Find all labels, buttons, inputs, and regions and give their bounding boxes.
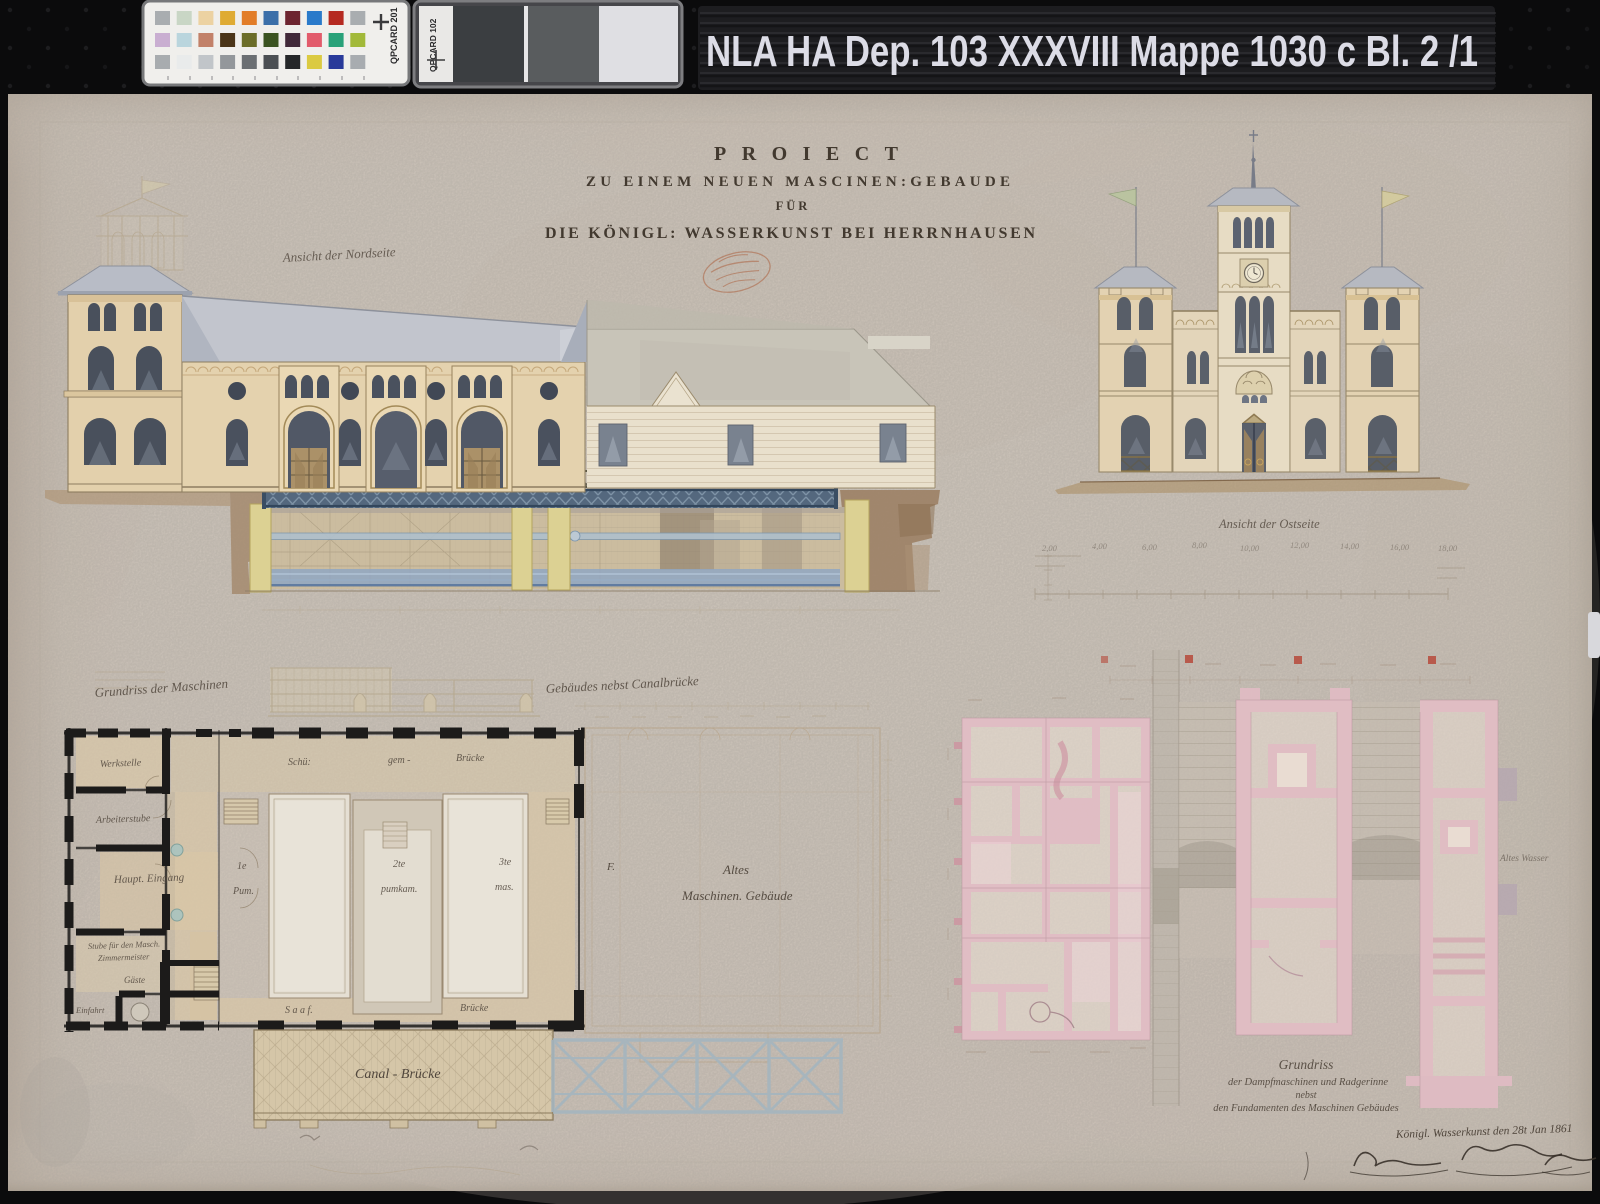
svg-text:QPCARD 201: QPCARD 201 bbox=[389, 7, 399, 64]
svg-text:DIE KÖNIGL: WASSERKUNST BEI HE: DIE KÖNIGL: WASSERKUNST BEI HERRNHAUSEN bbox=[545, 224, 1035, 242]
svg-text:Schü:: Schü: bbox=[288, 757, 311, 768]
svg-text:Grundriss: Grundriss bbox=[1279, 1057, 1334, 1072]
svg-text:2te: 2te bbox=[393, 859, 406, 870]
svg-text:10,00: 10,00 bbox=[1240, 543, 1260, 553]
svg-text:3te: 3te bbox=[498, 857, 512, 868]
svg-text:1e: 1e bbox=[237, 861, 247, 872]
svg-text:8,00: 8,00 bbox=[1192, 540, 1208, 550]
svg-text:Canal - Brücke: Canal - Brücke bbox=[355, 1067, 441, 1082]
svg-text:Einfahrt: Einfahrt bbox=[75, 1005, 105, 1015]
svg-text:4,00: 4,00 bbox=[1092, 541, 1108, 551]
svg-text:12,00: 12,00 bbox=[1290, 540, 1310, 550]
svg-text:Pum.: Pum. bbox=[232, 886, 254, 897]
svg-text:den Fundamenten des Maschinen: den Fundamenten des Maschinen Gebäudes bbox=[1213, 1103, 1398, 1114]
svg-text:Werkstelle: Werkstelle bbox=[100, 758, 142, 770]
svg-text:Brücke: Brücke bbox=[456, 753, 485, 764]
svg-text:F.: F. bbox=[606, 861, 615, 873]
svg-text:Haupt. Eingang: Haupt. Eingang bbox=[113, 872, 185, 886]
svg-text:Gäste: Gäste bbox=[124, 975, 145, 985]
svg-text:2,00: 2,00 bbox=[1042, 543, 1058, 553]
svg-text:Arbeiterstube: Arbeiterstube bbox=[95, 813, 151, 826]
svg-text:ZU EINEM NEUEN MASCINEN:GEBAUD: ZU EINEM NEUEN MASCINEN:GEBAUDE bbox=[586, 174, 1010, 190]
svg-text:Maschinen. Gebäude: Maschinen. Gebäude bbox=[681, 888, 793, 903]
svg-text:14,00: 14,00 bbox=[1340, 541, 1360, 551]
svg-text:mas.: mas. bbox=[495, 882, 514, 893]
svg-text:NLA HA Dep. 103 XXXVIII Mappe: NLA HA Dep. 103 XXXVIII Mappe 1030 c Bl.… bbox=[706, 27, 1478, 76]
svg-text:16,00: 16,00 bbox=[1390, 542, 1410, 552]
svg-text:Altes Wasser: Altes Wasser bbox=[1499, 854, 1549, 864]
svg-text:Zimmermeister: Zimmermeister bbox=[98, 951, 150, 963]
svg-text:pumkam.: pumkam. bbox=[380, 884, 417, 895]
svg-text:6,00: 6,00 bbox=[1142, 542, 1158, 552]
svg-text:gem -: gem - bbox=[388, 755, 411, 766]
svg-text:18,00: 18,00 bbox=[1438, 543, 1458, 553]
svg-text:Brücke: Brücke bbox=[460, 1003, 489, 1014]
svg-text:nebst: nebst bbox=[1295, 1090, 1316, 1101]
svg-text:Ansicht der Ostseite: Ansicht der Ostseite bbox=[1218, 517, 1320, 531]
svg-text:FÜR: FÜR bbox=[776, 199, 811, 213]
svg-text:Altes: Altes bbox=[722, 862, 749, 877]
svg-text:S a a f.: S a a f. bbox=[285, 1005, 313, 1016]
svg-text:der Dampfmaschinen und Radgeri: der Dampfmaschinen und Radgerinne bbox=[1228, 1077, 1388, 1088]
